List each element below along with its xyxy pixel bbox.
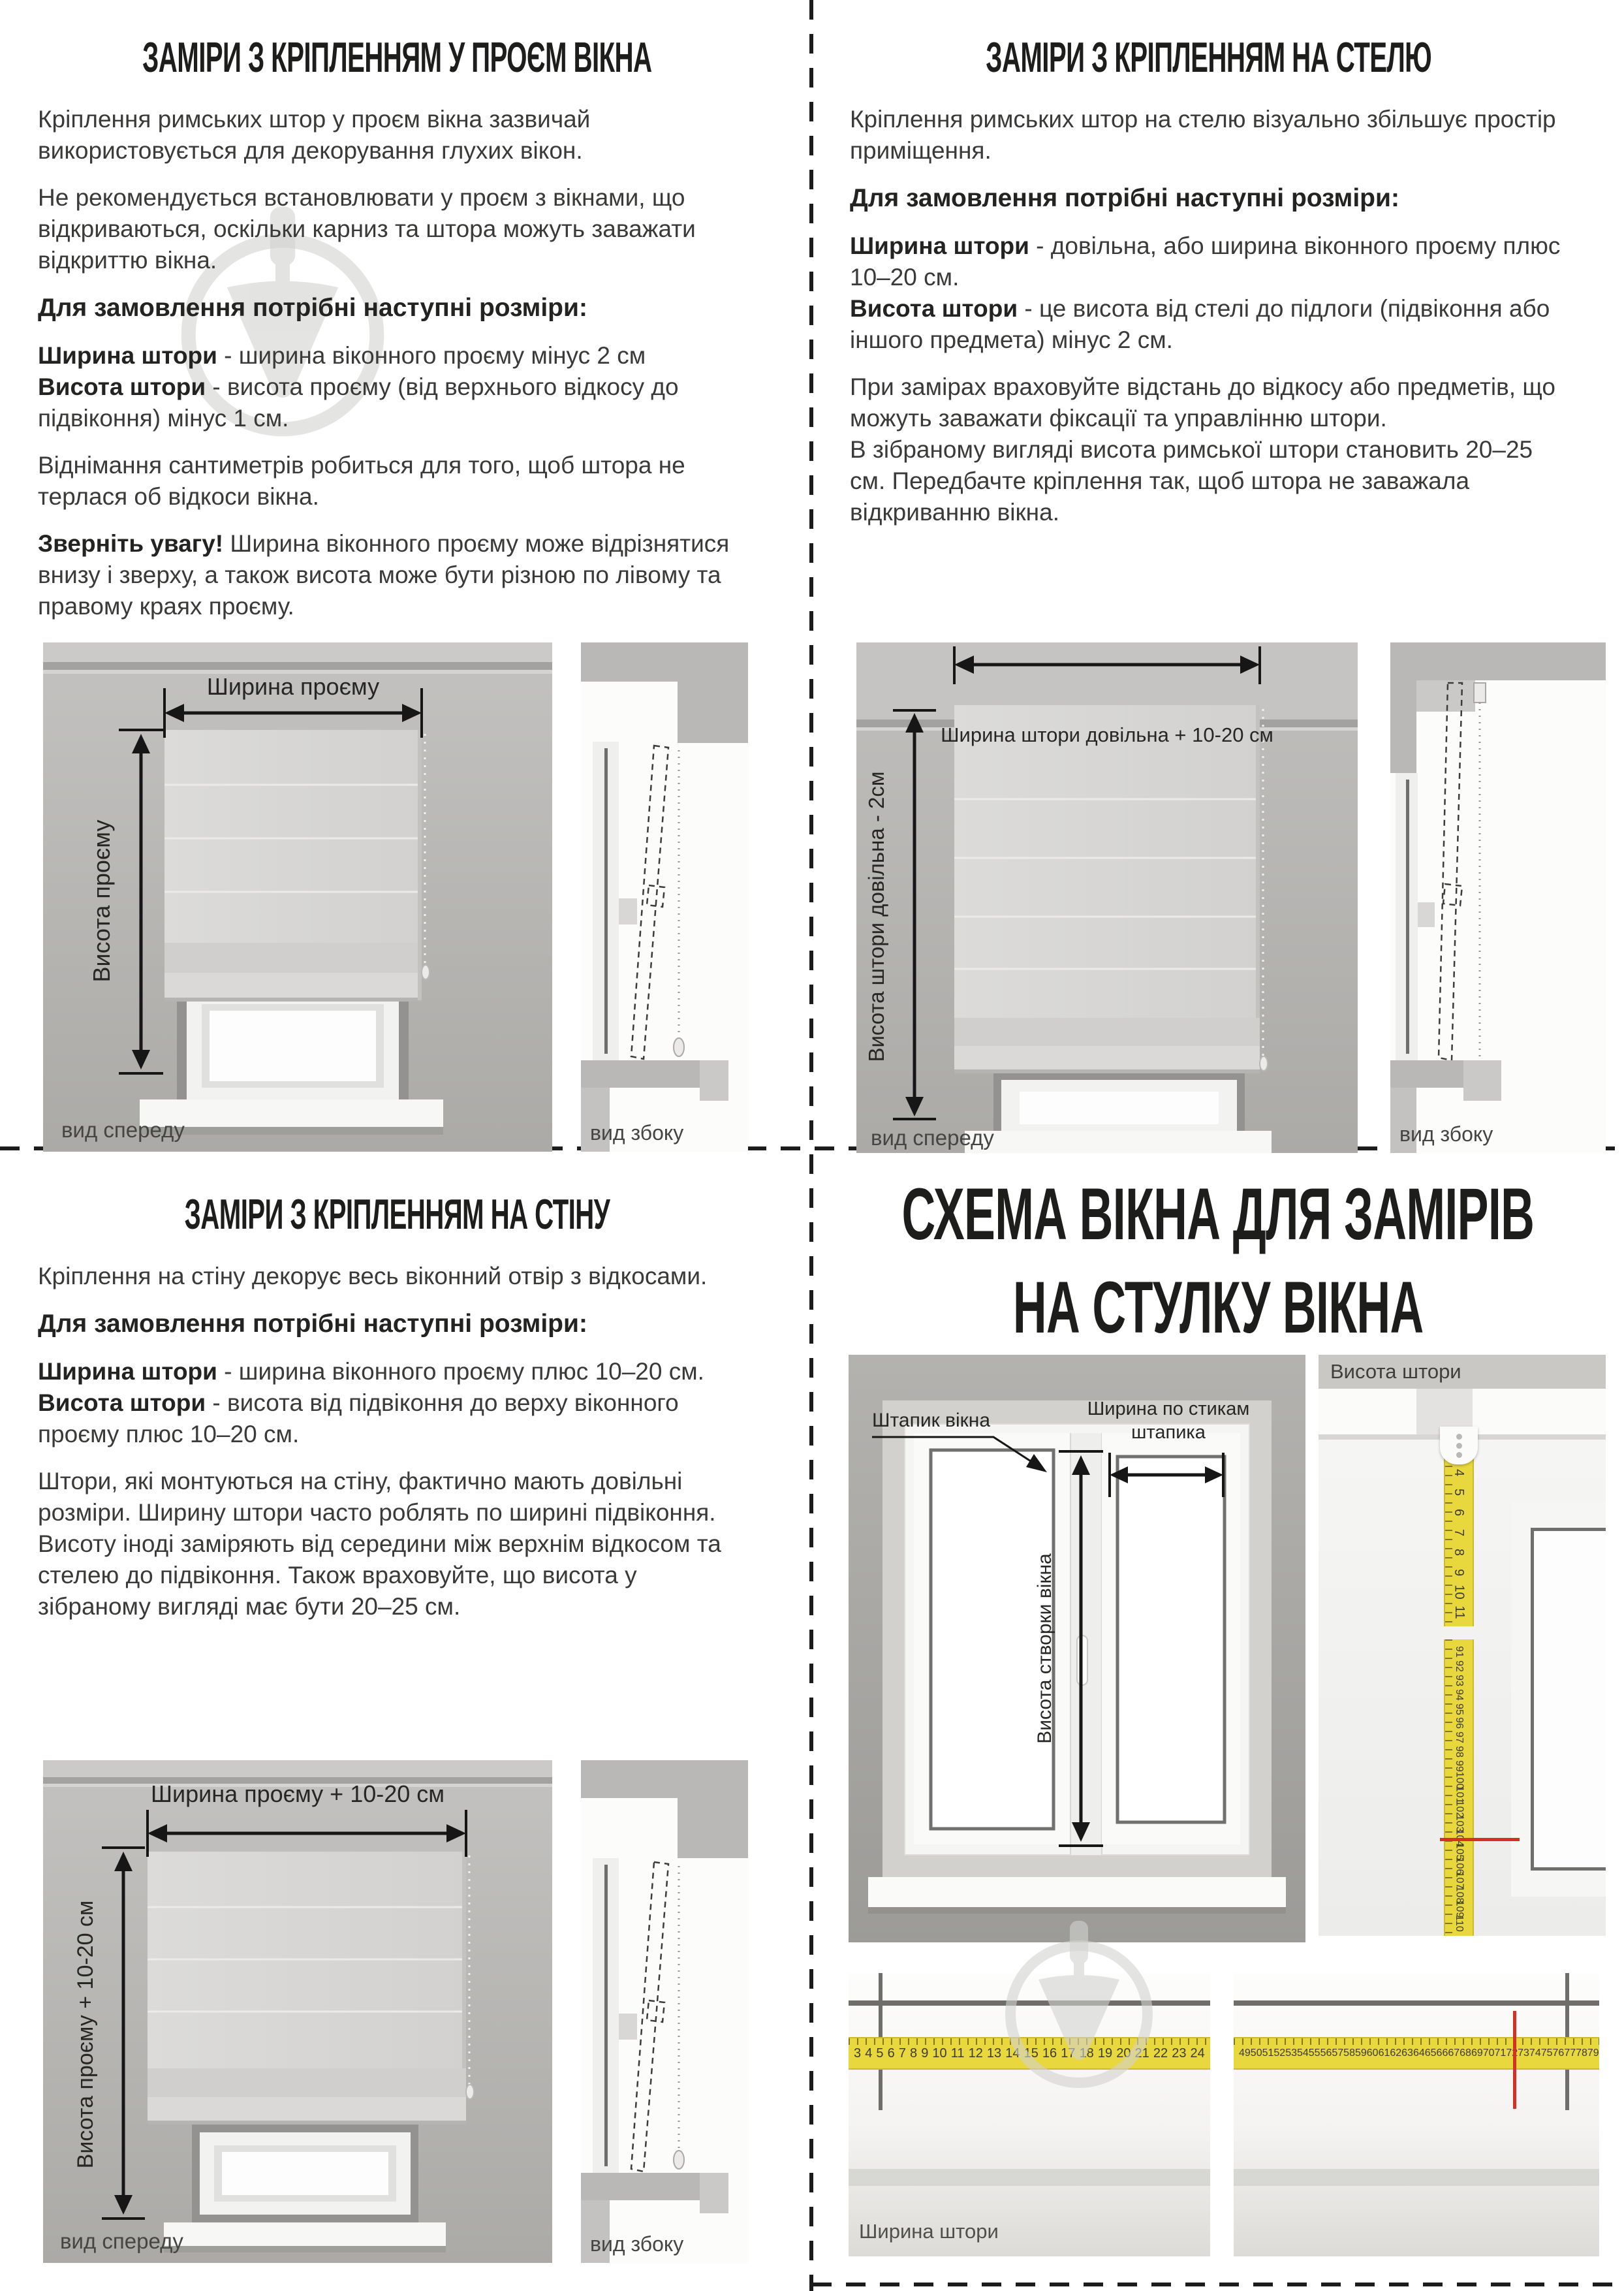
tape-number: 14 — [1005, 2046, 1020, 2061]
curtain-height-measure-panel: 34567891011 9192939495969798991001011021… — [1319, 1355, 1606, 1936]
tape-number: 8 — [1452, 1549, 1467, 1556]
tape-bracket — [1440, 1427, 1478, 1464]
side-view-caption: вид збоку — [1399, 1122, 1493, 1146]
tape-number: 52 — [1273, 2047, 1285, 2059]
width-label: Ширина проєму + 10-20 см — [151, 1780, 445, 1807]
tape-number: 11 — [951, 2046, 965, 2061]
section-title: ЗАМІРИ З КРІПЛЕННЯМ НА СТІНУ — [184, 1190, 609, 1239]
tape-number: 9 — [1452, 1569, 1467, 1576]
width-photo-right-segment: 4950515253545556575859606162636465666768… — [1234, 1973, 1599, 2256]
bottom-dashed-divider — [812, 2283, 1624, 2286]
scheme-title-line2: НА СТУЛКУ ВІКНА — [1013, 1261, 1424, 1354]
tape-number: 57 — [1332, 2047, 1343, 2059]
tape-number: 22 — [1153, 2046, 1168, 2061]
tape-number: 92 — [1453, 1660, 1465, 1672]
tape-number: 68 — [1460, 2047, 1471, 2059]
tape-number: 18 — [1080, 2046, 1094, 2061]
order-heading: Для замовлення потрібні наступні розміри… — [38, 292, 756, 324]
tape-number: 10 — [1452, 1585, 1467, 1600]
tape-number: 4 — [1452, 1469, 1467, 1476]
front-view-caption: вид спереду — [871, 1126, 994, 1150]
tape-number: 63 — [1401, 2047, 1413, 2059]
tape-number: 56 — [1320, 2047, 1332, 2059]
tape-number: 19 — [1098, 2046, 1112, 2061]
side-view-diagram: вид збоку — [581, 1760, 748, 2263]
glazing-bead-label: Штапик вікна — [872, 1410, 990, 1431]
vertical-tape-bottom-segment: 9192939495969798991001011021031041051061… — [1444, 1639, 1474, 1936]
order-heading: Для замовлення потрібні наступні розміри… — [850, 182, 1568, 215]
order-heading: Для замовлення потрібні наступні розміри… — [38, 1308, 756, 1340]
size-definitions: Ширина штори - ширина віконного проєму п… — [38, 1356, 756, 1450]
sash-height-label: Висота створки вікна — [1034, 1553, 1055, 1744]
paragraph: Кріплення римських штор у проєм вікна за… — [38, 104, 756, 166]
height-red-mark — [1440, 1838, 1520, 1841]
side-view-diagram: вид збоку — [1390, 642, 1606, 1153]
front-view-diagram: Ширина проєму Висота проєму вид спереду — [43, 642, 552, 1152]
tape-number: 4 — [865, 2046, 872, 2061]
tape-number: 5 — [1452, 1489, 1467, 1496]
paragraph: Кріплення римських штор на стелю візуаль… — [850, 104, 1568, 166]
side-view-diagram: вид збоку — [581, 642, 748, 1152]
horizontal-tape-left-segment: 3456789101112131415161718192021222324 — [849, 2037, 1210, 2070]
tape-number: 20 — [1116, 2046, 1131, 2061]
horizontal-tape-right-segment: 4950515253545556575859606162636465666768… — [1234, 2037, 1599, 2070]
tape-number: 97 — [1453, 1731, 1465, 1743]
side-view-caption: вид збоку — [590, 2232, 683, 2256]
section-title: ЗАМІРИ З КРІПЛЕННЯМ НА СТЕЛЮ — [986, 33, 1432, 82]
tape-number: 16 — [1042, 2046, 1057, 2061]
paragraph: Кріплення на стіну декорує весь віконний… — [38, 1261, 756, 1292]
tape-number: 64 — [1413, 2047, 1425, 2059]
section-mount-in-opening: ЗАМІРИ З КРІПЛЕННЯМ У ПРОЄМ ВІКНА Кріпле… — [0, 0, 812, 1146]
tape-number: 5 — [876, 2046, 883, 2061]
window-sash-schematic: Штапик вікна Ширина по стикам штапика Ви… — [849, 1355, 1305, 1942]
size-definitions: Ширина штори - довільна, або ширина віко… — [850, 230, 1568, 356]
tape-number: 61 — [1379, 2047, 1390, 2059]
section-mount-on-wall: ЗАМІРИ З КРІПЛЕННЯМ НА СТІНУ Кріплення н… — [0, 1149, 812, 2291]
tape-number: 55 — [1309, 2047, 1320, 2059]
tape-number: 67 — [1448, 2047, 1460, 2059]
tape-number: 99 — [1453, 1760, 1465, 1772]
tape-number: 78 — [1576, 2047, 1587, 2059]
size-definitions: Ширина штори - ширина віконного проєму м… — [38, 340, 756, 434]
width-photo-caption: Ширина штори — [859, 2220, 999, 2243]
tape-number: 77 — [1564, 2047, 1576, 2059]
width-photo-left-segment: 3456789101112131415161718192021222324 Ши… — [849, 1973, 1210, 2256]
paragraph: Віднімання сантиметрів робиться для того… — [38, 450, 756, 513]
tape-number: 15 — [1024, 2046, 1038, 2061]
tape-number: 21 — [1135, 2046, 1149, 2061]
tape-number: 62 — [1390, 2047, 1401, 2059]
tape-number: 66 — [1437, 2047, 1448, 2059]
tape-number: 69 — [1471, 2047, 1483, 2059]
tape-number: 10 — [932, 2046, 946, 2061]
side-view-caption: вид збоку — [590, 1121, 683, 1145]
height-label: Висота штори довільна - 2см — [864, 771, 888, 1062]
tape-number: 54 — [1297, 2047, 1309, 2059]
tape-number: 74 — [1529, 2047, 1541, 2059]
tape-number: 17 — [1061, 2046, 1075, 2061]
tape-number: 9 — [921, 2046, 928, 2061]
tape-number: 23 — [1172, 2046, 1186, 2061]
tape-number: 6 — [888, 2046, 895, 2061]
tape-number: 91 — [1453, 1646, 1465, 1658]
tape-number: 75 — [1541, 2047, 1553, 2059]
paragraph: Не рекомендується встановлювати у проєм … — [38, 182, 756, 276]
tape-number: 95 — [1453, 1703, 1465, 1715]
scheme-title-line1: СХЕМА ВІКНА ДЛЯ ЗАМІРІВ — [902, 1167, 1535, 1261]
bead-width-label-line1: Ширина по стикам — [1087, 1398, 1250, 1419]
tape-number: 59 — [1355, 2047, 1367, 2059]
panel-header: Висота штори — [1319, 1355, 1606, 1389]
tape-number: 49 — [1239, 2047, 1251, 2059]
width-label: Ширина штори довільна + 10-20 см — [941, 723, 1273, 746]
tape-number: 71 — [1495, 2047, 1507, 2059]
tape-number: 13 — [987, 2046, 1001, 2061]
tape-number: 51 — [1262, 2047, 1274, 2059]
tape-number: 65 — [1425, 2047, 1437, 2059]
tape-number: 110 — [1453, 1915, 1465, 1932]
front-view-diagram: Ширина штори довільна + 10-20 см Висота … — [856, 642, 1358, 1153]
tape-number: 70 — [1483, 2047, 1495, 2059]
tape-number: 8 — [910, 2046, 917, 2061]
tape-number: 93 — [1453, 1675, 1465, 1686]
tape-number: 24 — [1191, 2046, 1205, 2061]
tape-number: 53 — [1285, 2047, 1297, 2059]
paragraph: При замірах враховуйте відстань до відко… — [850, 371, 1568, 528]
tape-number: 60 — [1367, 2047, 1379, 2059]
tape-number: 94 — [1453, 1689, 1465, 1701]
tape-number: 98 — [1453, 1746, 1465, 1758]
bead-width-label-line2: штапика — [1131, 1422, 1206, 1443]
front-view-caption: вид спереду — [60, 2229, 183, 2253]
paragraph: Штори, які монтуються на стіну, фактично… — [38, 1466, 756, 1622]
tape-number: 73 — [1518, 2047, 1529, 2059]
front-view-diagram: Ширина проєму + 10-20 см Висота проєму +… — [43, 1760, 552, 2263]
tape-number: 12 — [969, 2046, 983, 2061]
section-mount-on-ceiling: ЗАМІРИ З КРІПЛЕННЯМ НА СТЕЛЮ Кріплення р… — [812, 0, 1624, 1146]
tape-number: 6 — [1452, 1509, 1467, 1516]
height-label: Висота проєму + 10-20 см — [73, 1901, 98, 2169]
tape-number: 7 — [899, 2046, 906, 2061]
curtain-width-measure-photo: 3456789101112131415161718192021222324 Ши… — [849, 1973, 1624, 2256]
tape-number: 3 — [854, 2046, 861, 2061]
height-label: Висота проєму — [88, 820, 115, 983]
tape-number: 7 — [1452, 1528, 1467, 1536]
section-title: ЗАМІРИ З КРІПЛЕННЯМ У ПРОЄМ ВІКНА — [142, 33, 651, 82]
tape-number: 11 — [1451, 1605, 1466, 1619]
width-red-mark — [1513, 2011, 1516, 2109]
vertical-tape-top-segment: 34567891011 — [1444, 1438, 1474, 1626]
instruction-sheet: ЗАМІРИ З КРІПЛЕННЯМ У ПРОЄМ ВІКНА Кріпле… — [0, 0, 1624, 2291]
width-label: Ширина проєму — [207, 673, 379, 700]
tape-number: 58 — [1343, 2047, 1355, 2059]
tape-number: 50 — [1251, 2047, 1262, 2059]
window-glass — [1531, 1528, 1606, 1871]
note-paragraph: Зверніть увагу! Ширина віконного проєму … — [38, 528, 756, 622]
tape-number: 79 — [1587, 2047, 1599, 2059]
front-view-caption: вид спереду — [61, 1118, 185, 1142]
tape-number: 96 — [1453, 1718, 1465, 1730]
tape-number: 76 — [1553, 2047, 1565, 2059]
